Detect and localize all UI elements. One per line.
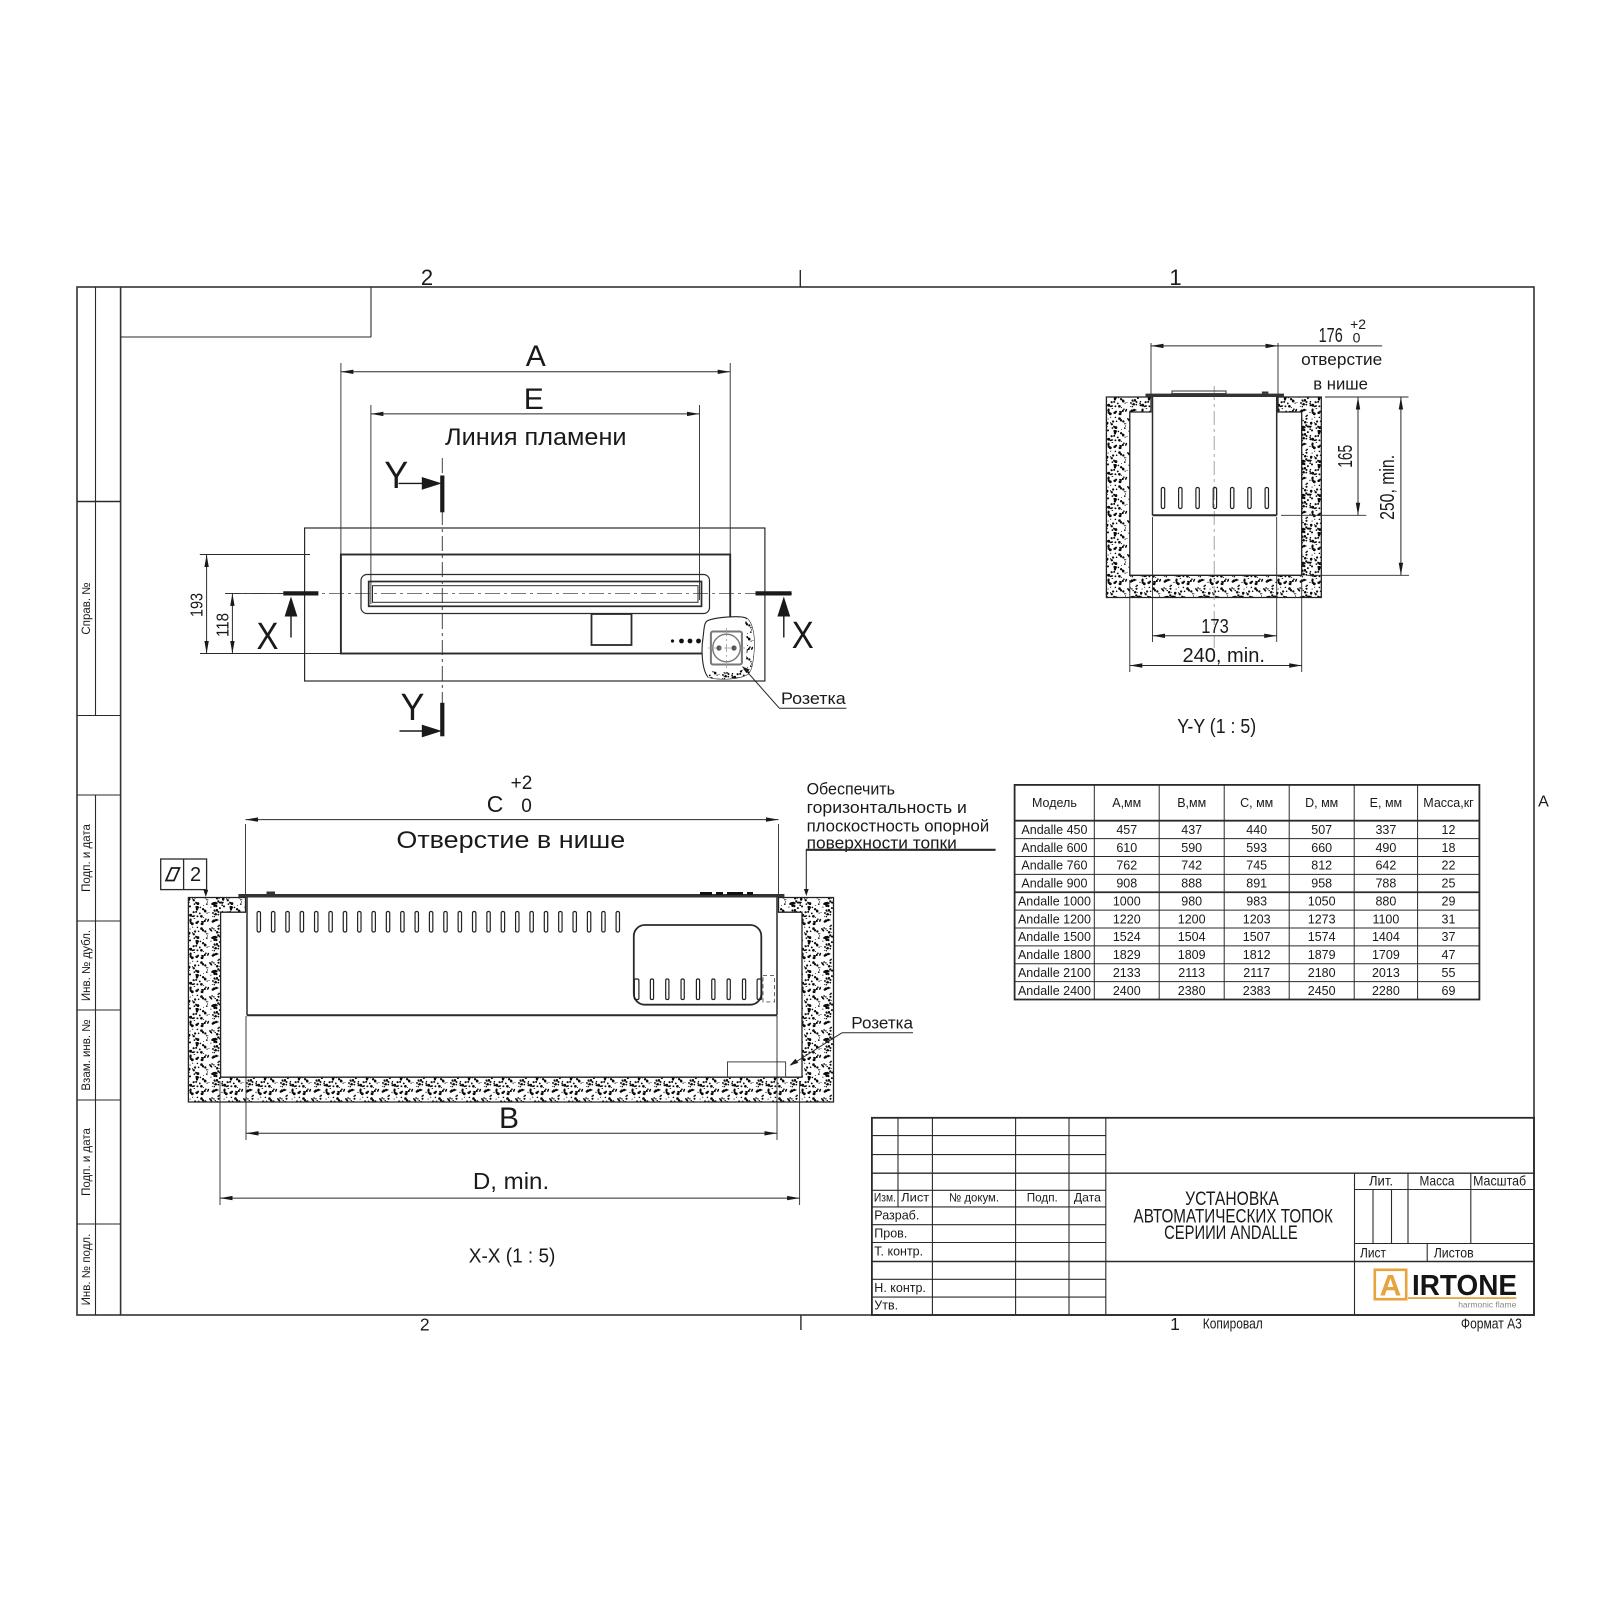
svg-text:плоскостность опорной: плоскостность опорной <box>807 817 990 835</box>
svg-text:507: 507 <box>1311 823 1332 837</box>
svg-text:Лист: Лист <box>1360 1245 1387 1261</box>
svg-text:37: 37 <box>1442 930 1456 944</box>
svg-text:2280: 2280 <box>1372 984 1400 998</box>
svg-text:Andalle 600: Andalle 600 <box>1021 841 1087 855</box>
svg-text:1404: 1404 <box>1372 930 1400 944</box>
svg-text:1709: 1709 <box>1372 948 1400 962</box>
svg-text:A: A <box>526 340 546 373</box>
svg-text:Модель: Модель <box>1032 796 1077 810</box>
svg-text:Andalle 760: Andalle 760 <box>1021 859 1087 873</box>
svg-text:337: 337 <box>1375 823 1396 837</box>
svg-text:Andalle 2400: Andalle 2400 <box>1018 984 1091 998</box>
svg-text:Andalle 2100: Andalle 2100 <box>1018 966 1091 980</box>
svg-text:1050: 1050 <box>1308 894 1336 908</box>
svg-text:908: 908 <box>1116 877 1137 891</box>
svg-text:2: 2 <box>190 864 201 886</box>
svg-text:1507: 1507 <box>1243 930 1271 944</box>
svg-text:593: 593 <box>1246 841 1267 855</box>
svg-text:1200: 1200 <box>1178 912 1206 926</box>
svg-text:C: C <box>487 791 504 817</box>
svg-text:1000: 1000 <box>1113 894 1141 908</box>
svg-text:980: 980 <box>1181 894 1202 908</box>
svg-text:X: X <box>792 615 814 657</box>
svg-text:0: 0 <box>1353 330 1361 346</box>
svg-text:590: 590 <box>1181 841 1202 855</box>
svg-text:47: 47 <box>1442 948 1456 962</box>
svg-text:Розетка: Розетка <box>781 689 846 708</box>
svg-text:457: 457 <box>1116 823 1137 837</box>
svg-text:Копировал: Копировал <box>1203 1316 1263 1333</box>
svg-text:2180: 2180 <box>1308 966 1336 980</box>
svg-text:1504: 1504 <box>1178 930 1206 944</box>
svg-text:harmonic flame: harmonic flame <box>1458 1300 1516 1310</box>
svg-text:Лит.: Лит. <box>1369 1172 1393 1188</box>
svg-text:31: 31 <box>1442 912 1456 926</box>
svg-text:Формат А3: Формат А3 <box>1461 1316 1522 1333</box>
svg-text:Подп. и дата: Подп. и дата <box>81 1128 93 1196</box>
svg-text:1273: 1273 <box>1308 912 1336 926</box>
svg-text:Листов: Листов <box>1434 1245 1474 1261</box>
svg-text:1829: 1829 <box>1113 948 1141 962</box>
svg-text:Линия пламени: Линия пламени <box>445 424 627 451</box>
svg-text:Andalle 1500: Andalle 1500 <box>1018 930 1091 944</box>
svg-text:Andalle 1800: Andalle 1800 <box>1018 948 1091 962</box>
svg-text:Н. контр.: Н. контр. <box>874 1281 926 1295</box>
svg-text:Е, мм: Е, мм <box>1370 796 1402 810</box>
svg-text:1203: 1203 <box>1243 912 1271 926</box>
svg-text:888: 888 <box>1181 877 1202 891</box>
svg-text:173: 173 <box>1201 616 1229 638</box>
svg-text:742: 742 <box>1181 859 1202 873</box>
svg-text:С, мм: С, мм <box>1240 796 1273 810</box>
svg-text:+2: +2 <box>511 773 533 794</box>
svg-text:A: A <box>1538 794 1549 811</box>
svg-text:891: 891 <box>1246 877 1267 891</box>
svg-text:958: 958 <box>1311 877 1332 891</box>
svg-text:1: 1 <box>1169 265 1181 290</box>
svg-text:Y-Y (1 : 5): Y-Y (1 : 5) <box>1177 716 1256 738</box>
svg-text:Отверстие в нише: Отверстие в нише <box>396 827 625 854</box>
svg-text:2113: 2113 <box>1178 966 1205 980</box>
svg-text:А,мм: А,мм <box>1112 796 1141 810</box>
svg-text:D, min.: D, min. <box>473 1168 549 1194</box>
svg-text:240, min.: 240, min. <box>1182 645 1265 667</box>
svg-text:Подп.: Подп. <box>1027 1191 1058 1205</box>
svg-text:880: 880 <box>1375 894 1396 908</box>
svg-text:55: 55 <box>1442 966 1456 980</box>
svg-text:B: B <box>499 1102 519 1135</box>
svg-text:2400: 2400 <box>1113 984 1141 998</box>
svg-text:Масса,кг: Масса,кг <box>1423 796 1474 810</box>
svg-text:№ докум.: № докум. <box>949 1191 999 1205</box>
svg-text:Масштаб: Масштаб <box>1473 1172 1526 1188</box>
svg-text:Дата: Дата <box>1074 1191 1101 1205</box>
svg-text:1574: 1574 <box>1308 930 1336 944</box>
svg-text:2133: 2133 <box>1113 966 1141 980</box>
svg-text:0: 0 <box>521 796 532 817</box>
svg-text:Лист: Лист <box>901 1191 930 1205</box>
svg-text:437: 437 <box>1181 823 1202 837</box>
svg-text:Andalle 900: Andalle 900 <box>1021 877 1087 891</box>
svg-text:1812: 1812 <box>1243 948 1271 962</box>
svg-text:2383: 2383 <box>1243 984 1271 998</box>
svg-text:2: 2 <box>420 1315 430 1335</box>
svg-text:25: 25 <box>1442 877 1456 891</box>
svg-text:СЕРИИИ ANDALLE: СЕРИИИ ANDALLE <box>1164 1223 1298 1244</box>
svg-text:745: 745 <box>1246 859 1267 873</box>
svg-text:Пров.: Пров. <box>874 1226 907 1240</box>
svg-text:2380: 2380 <box>1178 984 1206 998</box>
svg-text:A: A <box>1380 1270 1402 1303</box>
svg-text:440: 440 <box>1246 823 1267 837</box>
svg-text:2450: 2450 <box>1308 984 1336 998</box>
svg-text:250, min.: 250, min. <box>1377 455 1399 520</box>
svg-text:Взам. инв. №: Взам. инв. № <box>81 1019 93 1090</box>
svg-text:1100: 1100 <box>1372 912 1399 926</box>
svg-text:Подп. и дата: Подп. и дата <box>81 824 93 892</box>
svg-text:193: 193 <box>187 593 207 617</box>
svg-text:отверстие: отверстие <box>1301 350 1382 369</box>
svg-text:176: 176 <box>1319 325 1343 347</box>
svg-text:Y: Y <box>384 455 408 497</box>
svg-text:1220: 1220 <box>1113 912 1141 926</box>
svg-text:1809: 1809 <box>1178 948 1206 962</box>
svg-text:29: 29 <box>1442 894 1456 908</box>
svg-text:горизонтальность и: горизонтальность и <box>807 799 967 817</box>
svg-text:X: X <box>257 616 279 658</box>
svg-text:2013: 2013 <box>1372 966 1400 980</box>
svg-text:165: 165 <box>1335 445 1357 468</box>
svg-text:Andalle 450: Andalle 450 <box>1021 823 1087 837</box>
svg-text:E: E <box>524 383 544 416</box>
svg-text:Обеспечить: Обеспечить <box>807 780 895 798</box>
svg-text:Andalle 1000: Andalle 1000 <box>1018 894 1091 908</box>
svg-text:660: 660 <box>1311 841 1332 855</box>
svg-text:788: 788 <box>1375 877 1396 891</box>
svg-text:610: 610 <box>1116 841 1137 855</box>
svg-text:812: 812 <box>1311 859 1332 873</box>
svg-text:X-X (1 : 5): X-X (1 : 5) <box>469 1246 556 1268</box>
svg-text:1524: 1524 <box>1113 930 1141 944</box>
svg-text:1: 1 <box>1170 1314 1180 1334</box>
svg-text:490: 490 <box>1375 841 1396 855</box>
svg-text:Разраб.: Разраб. <box>874 1209 919 1223</box>
svg-text:Т. контр.: Т. контр. <box>874 1245 923 1259</box>
svg-text:Andalle 1200: Andalle 1200 <box>1018 912 1091 926</box>
svg-text:642: 642 <box>1375 859 1396 873</box>
svg-text:69: 69 <box>1442 984 1456 998</box>
svg-text:762: 762 <box>1116 859 1137 873</box>
svg-text:22: 22 <box>1442 859 1456 873</box>
svg-text:2117: 2117 <box>1243 966 1270 980</box>
svg-text:Y: Y <box>401 687 425 729</box>
svg-text:2: 2 <box>421 265 433 290</box>
svg-text:Розетка: Розетка <box>851 1014 913 1033</box>
svg-text:Утв.: Утв. <box>874 1299 898 1313</box>
svg-text:118: 118 <box>213 613 233 637</box>
svg-text:Инв. № дубл.: Инв. № дубл. <box>81 930 93 1001</box>
svg-text:D, мм: D, мм <box>1305 796 1338 810</box>
svg-text:983: 983 <box>1246 894 1267 908</box>
svg-text:В,мм: В,мм <box>1177 796 1206 810</box>
svg-text:Масса: Масса <box>1420 1172 1455 1188</box>
svg-text:в нише: в нише <box>1313 374 1368 393</box>
svg-text:12: 12 <box>1442 823 1456 837</box>
svg-text:18: 18 <box>1442 841 1456 855</box>
svg-text:Инв. № подл.: Инв. № подл. <box>81 1234 93 1306</box>
svg-text:Изм.: Изм. <box>874 1191 896 1205</box>
svg-text:1879: 1879 <box>1308 948 1336 962</box>
svg-text:Справ. №: Справ. № <box>81 582 93 634</box>
